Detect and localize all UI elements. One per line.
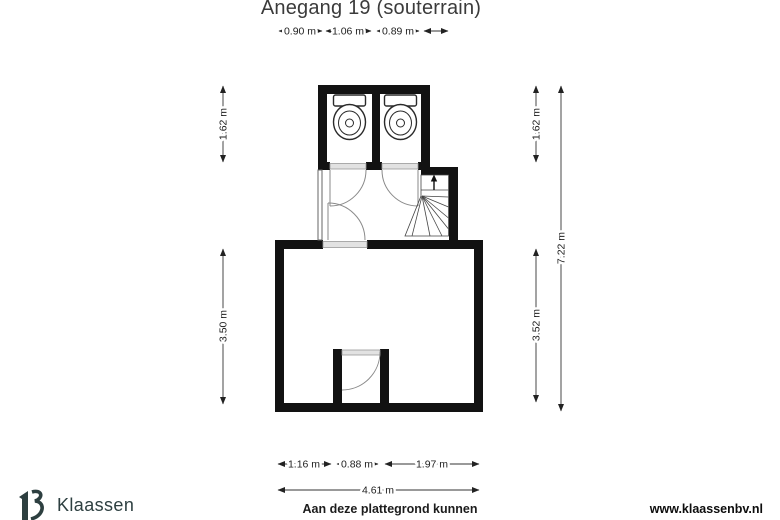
wall: [333, 349, 342, 403]
dim-label-top-3: 0.89 m: [382, 26, 414, 38]
wall: [367, 240, 483, 249]
dim-label-right-lower: 3.52 m: [531, 309, 543, 341]
wall: [449, 167, 458, 248]
door-swing-arc: [330, 170, 366, 206]
door-swing-arc: [328, 203, 365, 240]
toilet-icon: [385, 95, 417, 140]
wall: [372, 93, 380, 165]
floorplan-page: Anegang 19 (souterrain): [0, 0, 780, 520]
door-threshold: [342, 350, 380, 355]
stairs-up-arrow-icon: [431, 175, 437, 191]
dim-label-right-upper: 1.62 m: [531, 108, 543, 140]
dim-label-top-2: 1.06 m: [332, 26, 364, 38]
dim-label-bottom-3: 1.97 m: [416, 459, 448, 471]
floorplan-drawing: 0.90 m 1.06 m 0.89 m 1.62 m 3.50 m 1.62 …: [0, 0, 780, 520]
toilet-icon: [334, 95, 366, 140]
dim-label-bottom-2: 0.88 m: [341, 459, 373, 471]
dim-label-left-upper: 1.62 m: [218, 108, 230, 140]
dim-label-bottom-1: 1.16 m: [288, 459, 320, 471]
door-threshold: [323, 242, 367, 248]
dim-label-left-lower: 3.50 m: [218, 310, 230, 342]
website-link: www.klaassenbv.nl: [650, 502, 763, 516]
wall: [275, 240, 284, 412]
wall: [318, 85, 430, 94]
wall: [318, 85, 327, 170]
wall: [474, 240, 483, 412]
door-threshold: [382, 164, 418, 170]
wall: [275, 403, 483, 412]
wall: [366, 162, 382, 170]
dim-label-right-total: 7.22 m: [556, 232, 568, 264]
door-swing-arc: [342, 352, 380, 390]
dim-label-bottom-total: 4.61 m: [362, 485, 394, 497]
wall: [318, 162, 330, 170]
door-threshold: [330, 164, 366, 170]
door-openings: [323, 164, 418, 356]
door-swing-arc: [382, 170, 418, 206]
wall: [421, 85, 430, 175]
dim-label-top-1: 0.90 m: [284, 26, 316, 38]
partition-wall: [318, 170, 322, 240]
wall: [380, 349, 389, 403]
